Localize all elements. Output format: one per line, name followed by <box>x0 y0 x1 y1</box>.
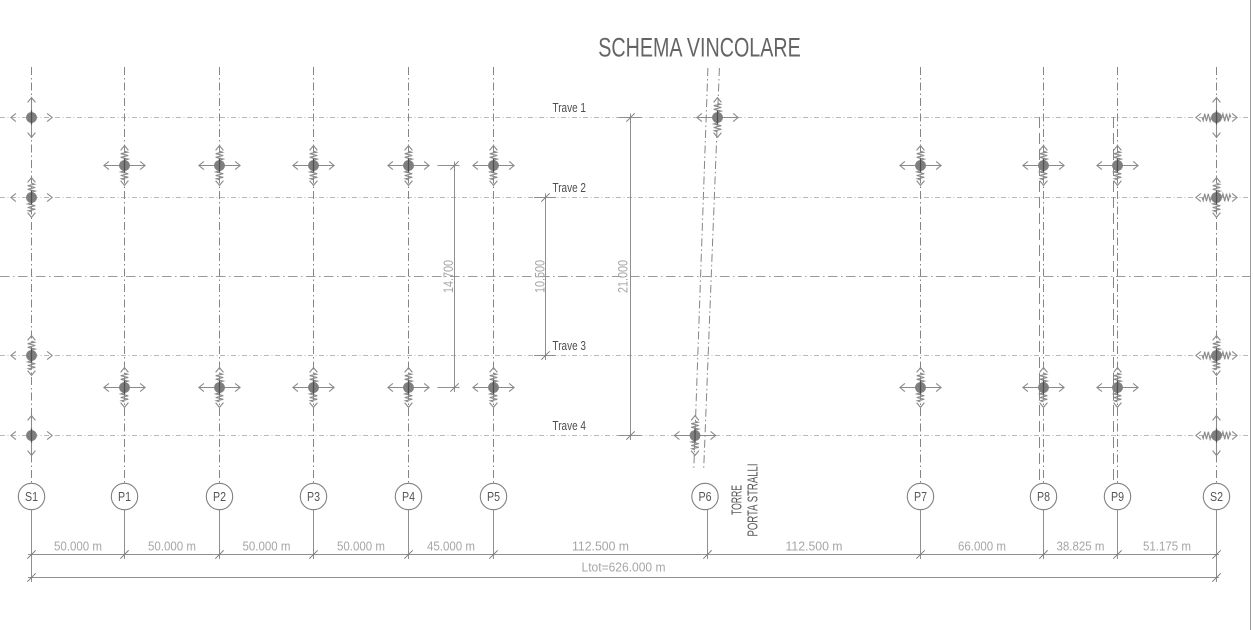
svg-text:50.000 m: 50.000 m <box>54 539 102 554</box>
svg-text:Trave 4: Trave 4 <box>553 419 587 433</box>
svg-text:PORTA STRALLI: PORTA STRALLI <box>745 464 762 537</box>
svg-text:45.000 m: 45.000 m <box>427 539 475 554</box>
svg-text:P4: P4 <box>402 489 415 504</box>
svg-text:Trave 1: Trave 1 <box>553 101 587 115</box>
svg-text:Trave 2: Trave 2 <box>553 181 587 195</box>
svg-text:P9: P9 <box>1111 489 1124 504</box>
svg-text:P3: P3 <box>307 489 320 504</box>
svg-text:SCHEMA VINCOLARE: SCHEMA VINCOLARE <box>598 32 801 62</box>
svg-text:P1: P1 <box>118 489 131 504</box>
svg-text:S1: S1 <box>25 489 38 504</box>
svg-text:P2: P2 <box>213 489 226 504</box>
svg-text:51.175 m: 51.175 m <box>1143 539 1191 554</box>
svg-text:P8: P8 <box>1037 489 1050 504</box>
svg-text:21.000: 21.000 <box>614 260 630 293</box>
svg-text:TORRE: TORRE <box>729 485 746 515</box>
svg-text:P7: P7 <box>914 489 927 504</box>
svg-text:38.825 m: 38.825 m <box>1057 539 1105 554</box>
svg-text:66.000 m: 66.000 m <box>958 539 1006 554</box>
svg-text:P5: P5 <box>487 489 500 504</box>
svg-text:50.000 m: 50.000 m <box>243 539 291 554</box>
svg-text:10.500: 10.500 <box>531 260 547 293</box>
svg-text:50.000 m: 50.000 m <box>337 539 385 554</box>
svg-text:Trave 3: Trave 3 <box>553 339 587 353</box>
svg-text:Ltot=626.000 m: Ltot=626.000 m <box>582 560 666 575</box>
svg-text:P6: P6 <box>699 489 712 504</box>
svg-text:S2: S2 <box>1210 489 1223 504</box>
svg-text:112.500 m: 112.500 m <box>786 539 843 554</box>
svg-text:112.500 m: 112.500 m <box>572 539 629 554</box>
svg-text:50.000 m: 50.000 m <box>148 539 196 554</box>
svg-text:14.700: 14.700 <box>440 260 456 293</box>
